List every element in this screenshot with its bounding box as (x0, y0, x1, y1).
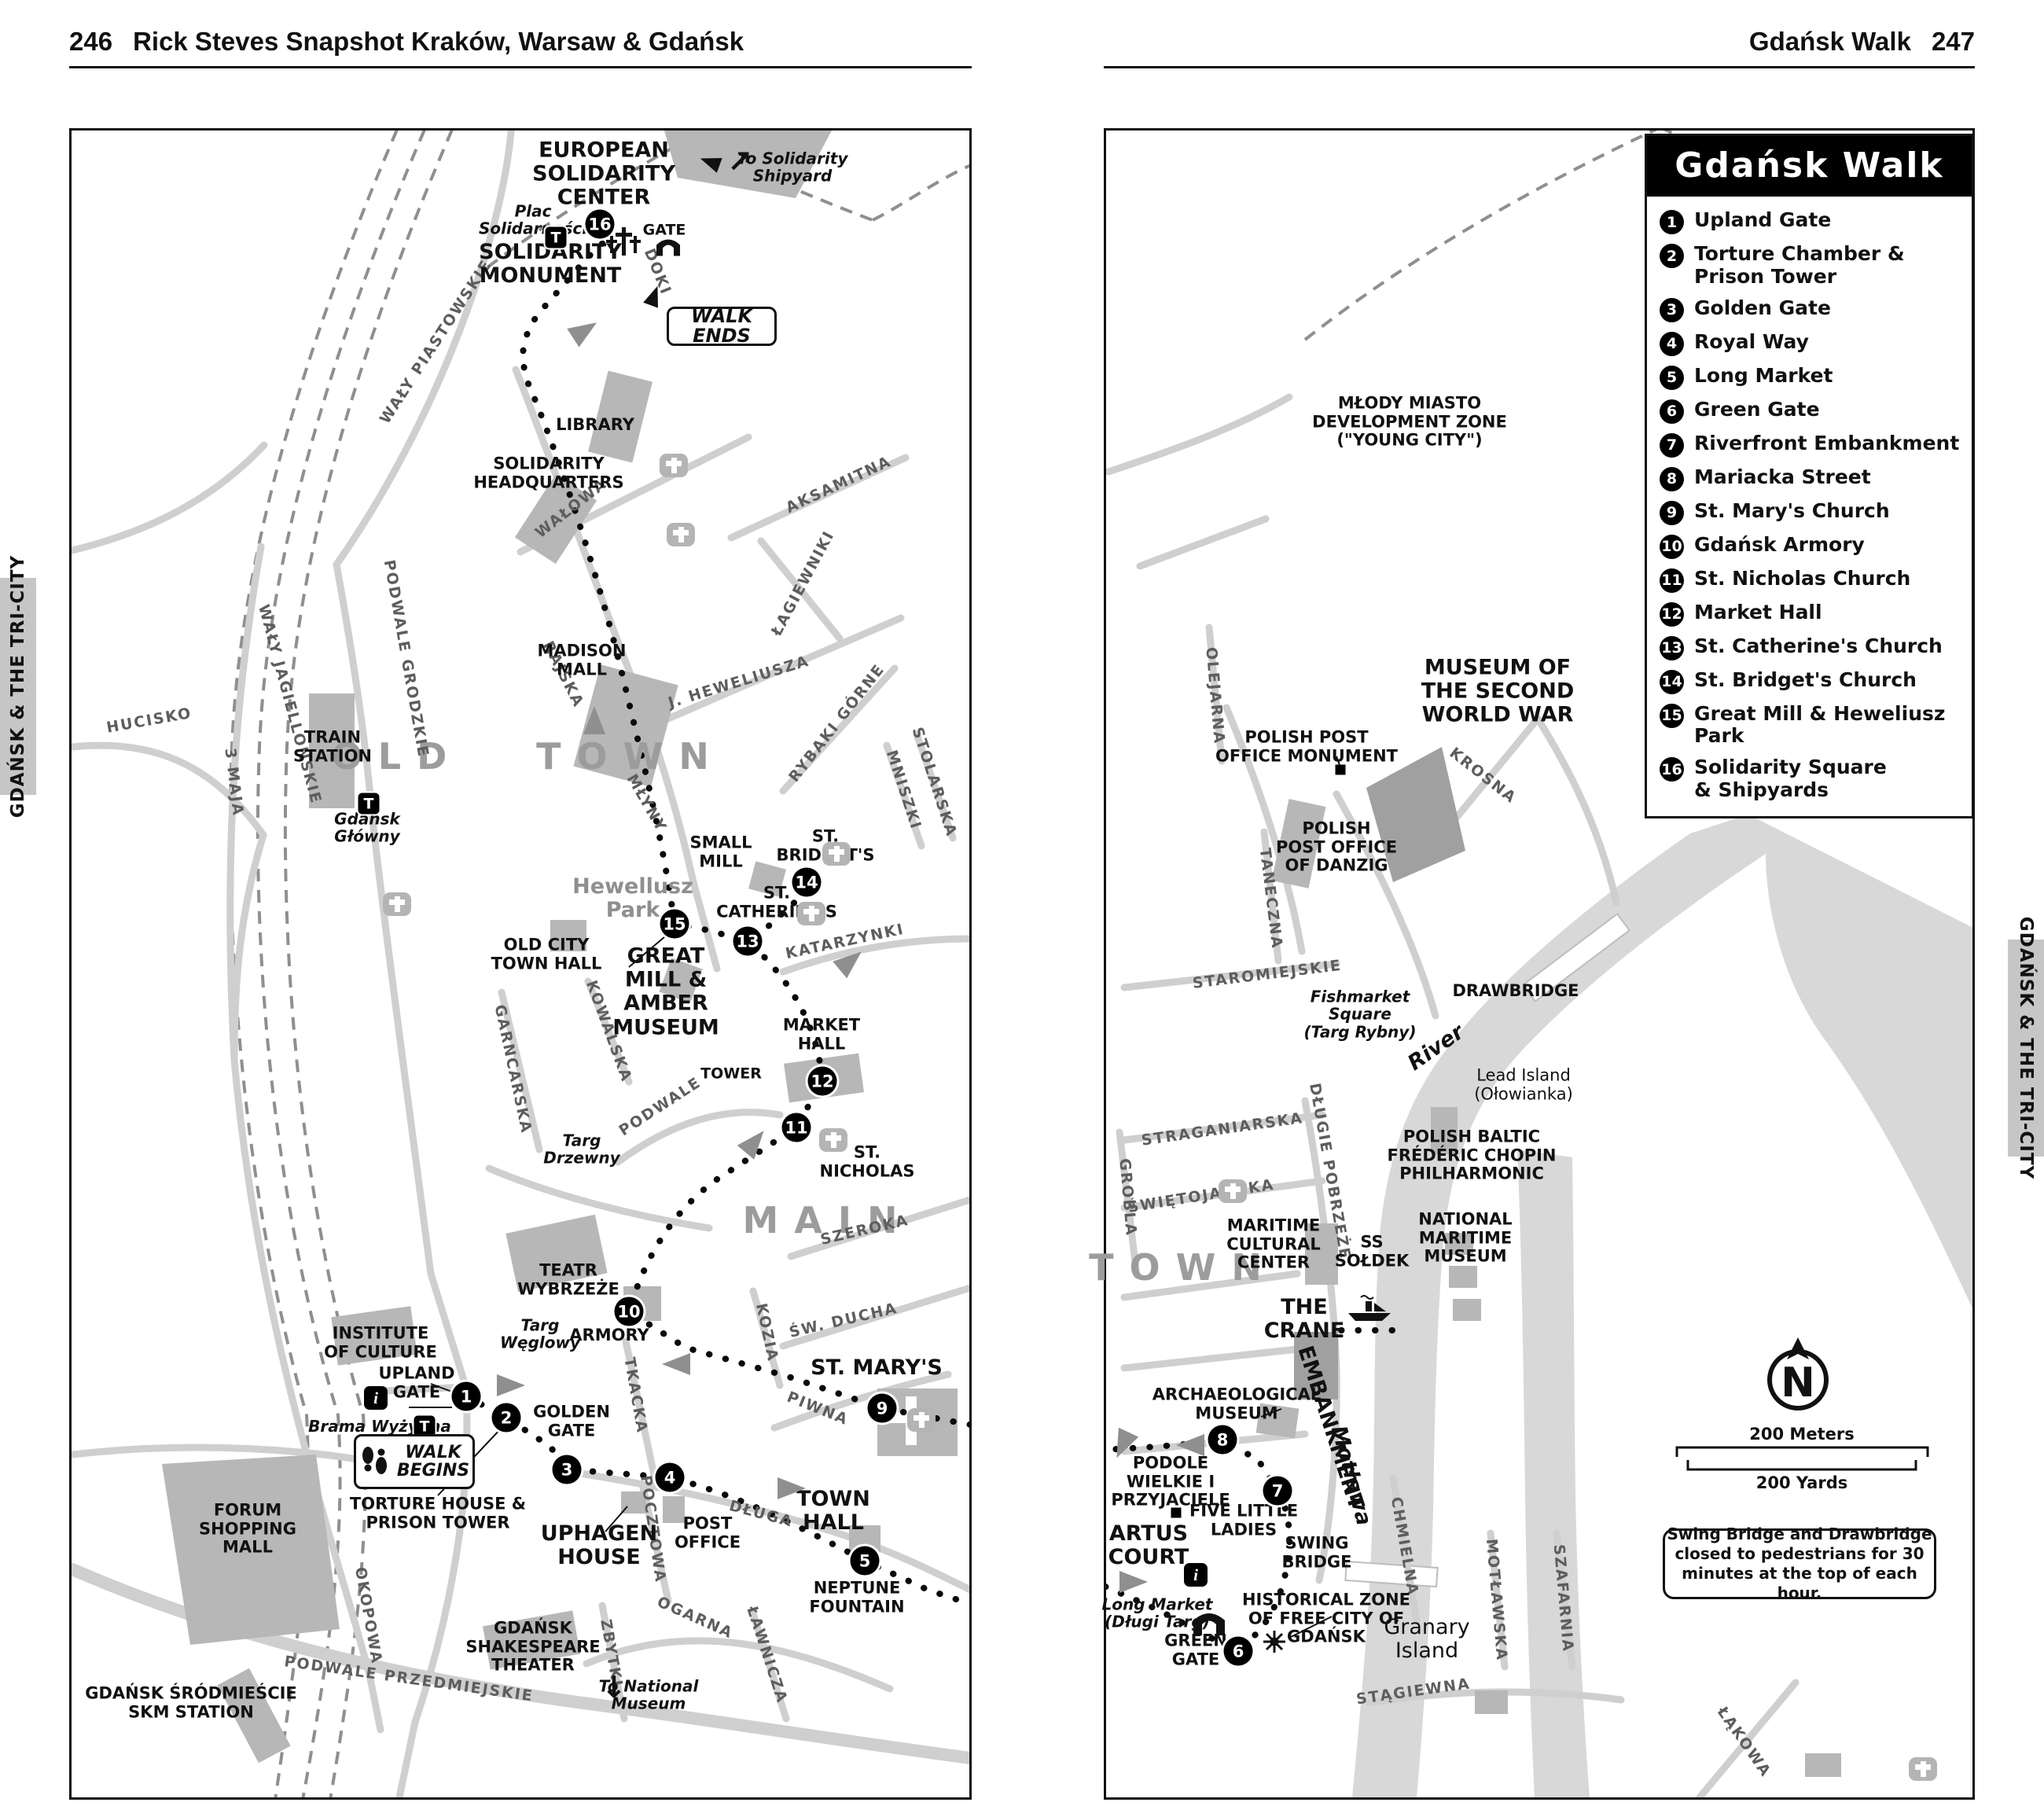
historic-zone-marker-icon (1262, 1629, 1287, 1654)
ship-icon (1345, 1294, 1394, 1322)
legend-label-riverfront-embankment: Riverfront Embankment (1694, 432, 1959, 455)
legend-item-1: 1Upland Gate (1660, 209, 1961, 234)
walk-stop-12: 12 (808, 1067, 837, 1096)
map-label-młody-miasto-development-zone-young-city: MŁODY MIASTO DEVELOPMENT ZONE ("YOUNG CI… (1312, 395, 1507, 451)
legend-list: 1Upland Gate2Torture Chamber & Prison To… (1647, 197, 1972, 816)
legend-label-mariacka-street: Mariacka Street (1694, 466, 1871, 489)
map-label-gdańsk-śródmieście-skm-station: GDAŃSK ŚRÓDMIEŚCIE SKM STATION (85, 1684, 297, 1721)
walk-begins-label: WALK BEGINS (397, 1444, 469, 1480)
legend-item-2: 2Torture Chamber & Prison Tower (1660, 243, 1961, 289)
bridge-note-text: Swing Bridge and Drawbridge closed to pe… (1665, 1525, 1934, 1603)
legend-badge-16: 16 (1660, 757, 1684, 782)
walk-stop-2: 2 (492, 1403, 521, 1433)
map-label-to-solidarity-shipyard: To Solidarity Shipyard (737, 150, 848, 186)
book-spread: 246Rick Steves Snapshot Kraków, Warsaw &… (0, 0, 2044, 1817)
walk-stop-1: 1 (452, 1382, 481, 1411)
legend-label-torture-chamber-prison-tower: Torture Chamber & Prison Tower (1694, 243, 1905, 289)
legend-label-golden-gate: Golden Gate (1694, 297, 1831, 320)
walk-ends-callout: WALK ENDS (667, 307, 777, 346)
legend-title: Gdańsk Walk (1647, 136, 1972, 197)
map-label-institute-of-culture: INSTITUTE OF CULTURE (324, 1324, 437, 1361)
walk-stop-10: 10 (615, 1297, 644, 1326)
legend-label-st-catherine-s-church: St. Catherine's Church (1694, 635, 1943, 658)
legend-badge-10: 10 (1660, 535, 1684, 559)
map-label-swing-bridge: SWING BRIDGE (1281, 1534, 1351, 1571)
map-label-market-hall: MARKET HALL (783, 1016, 860, 1053)
legend-label-green-gate: Green Gate (1694, 399, 1820, 421)
map-label-town-hall: TOWN HALL (796, 1488, 870, 1535)
church-cross-icon (822, 842, 851, 866)
green-gate-icon (1191, 1613, 1227, 1636)
map-label-polish-post-office-monument: POLISH POST OFFICE MONUMENT (1215, 728, 1398, 765)
map-label-plac-solidarności: Plac Solidarności (479, 203, 587, 238)
legend-label-gdańsk-armory: Gdańsk Armory (1694, 534, 1865, 557)
legend-item-4: 4Royal Way (1660, 331, 1961, 356)
legend-label-st-mary-s-church: St. Mary's Church (1694, 500, 1890, 523)
map-label-granary-island: Granary Island (1384, 1616, 1469, 1663)
direction-arrow-icon (662, 1353, 690, 1375)
map-label-golden-gate: GOLDEN GATE (533, 1403, 610, 1440)
legend-item-3: 3Golden Gate (1660, 297, 1961, 322)
walk-stop-8: 8 (1208, 1425, 1237, 1455)
church-cross-icon (383, 892, 411, 916)
legend-label-upland-gate: Upland Gate (1694, 209, 1831, 232)
scale-yards-label: 200 Yards (1756, 1473, 1847, 1492)
church-cross-icon (1909, 1757, 1937, 1781)
map-label-post-office: POST OFFICE (675, 1514, 741, 1551)
legend-item-16: 16Solidarity Square & Shipyards (1660, 756, 1961, 802)
walk-stop-13: 13 (733, 927, 763, 956)
legend-item-12: 12Market Hall (1660, 601, 1961, 627)
bridge-note: Swing Bridge and Drawbridge closed to pe… (1663, 1528, 1936, 1599)
map-label-lead-island-ołowianka: Lead Island (Ołowianka) (1474, 1066, 1573, 1103)
legend-item-13: 13St. Catherine's Church (1660, 635, 1961, 660)
map-label-targ-węglowy: Targ Węglowy (500, 1317, 580, 1352)
compass-letter: N (1781, 1359, 1815, 1407)
direction-arrow-icon (1119, 1571, 1148, 1593)
info-icon: i (364, 1386, 388, 1410)
legend-badge-7: 7 (1660, 433, 1684, 458)
walk-stop-7: 7 (1263, 1477, 1292, 1506)
legend-badge-3: 3 (1660, 298, 1684, 322)
legend-badge-6: 6 (1660, 399, 1684, 424)
walk-stop-11: 11 (782, 1113, 811, 1142)
legend-label-st-bridget-s-church: St. Bridget's Church (1694, 669, 1917, 692)
map-label-tower: TOWER (700, 1065, 762, 1082)
map-label-maritime-cultural-center: MARITIME CULTURAL CENTER (1226, 1217, 1321, 1273)
legend-badge-9: 9 (1660, 501, 1684, 525)
map-label-archaeological-museum: ARCHAEOLOGICAL MUSEUM (1153, 1385, 1321, 1422)
map-label-madison-mall: MADISON MALL (538, 642, 627, 679)
legend-item-5: 5Long Market (1660, 365, 1961, 390)
map-label-old-city-town-hall: OLD CITY TOWN HALL (491, 936, 602, 973)
legend-label-great-mill-heweliusz-park: Great Mill & Heweliusz Park (1694, 703, 1945, 749)
map-label-small-mill: SMALL MILL (689, 833, 752, 870)
legend-label-solidarity-square-shipyards: Solidarity Square & Shipyards (1694, 756, 1887, 802)
map-label-green-gate: GREEN GATE (1164, 1631, 1227, 1668)
map-label-upland-gate: UPLAND GATE (378, 1364, 454, 1401)
legend-label-market-hall: Market Hall (1694, 601, 1822, 624)
tram-stop-icon: T (546, 227, 567, 248)
legend-badge-14: 14 (1660, 670, 1684, 694)
map-label-great-mill-amber-museum: GREAT MILL & AMBER MUSEUM (612, 945, 719, 1040)
legend-item-9: 9St. Mary's Church (1660, 500, 1961, 525)
poi-square-icon (1336, 765, 1346, 775)
walk-stop-9: 9 (868, 1394, 897, 1423)
direction-arrow-icon (1176, 1434, 1204, 1456)
walk-stop-4: 4 (656, 1463, 685, 1492)
map-label-five-little-ladies: FIVE LITTLE LADIES (1189, 1502, 1298, 1539)
gate-icon (655, 239, 682, 257)
legend-badge-13: 13 (1660, 636, 1684, 660)
map-label-armory: ARMORY (569, 1326, 649, 1345)
map-label-library: LIBRARY (556, 416, 634, 435)
legend-badge-5: 5 (1660, 366, 1684, 390)
walk-stop-15: 15 (660, 910, 689, 939)
walk-stop-14: 14 (792, 868, 822, 897)
legend-label-royal-way: Royal Way (1694, 331, 1809, 354)
compass-north-icon: N (1760, 1333, 1836, 1416)
map-label-uphagen-house: UPHAGEN HOUSE (541, 1522, 657, 1569)
legend-badge-8: 8 (1660, 467, 1684, 491)
map-label-artus-court: ARTUS COURT (1108, 1522, 1189, 1569)
legend-item-15: 15Great Mill & Heweliusz Park (1660, 703, 1961, 749)
map-label-fishmarket-square-targ-rybny: Fishmarket Square (Targ Rybny) (1304, 988, 1417, 1040)
map-label-drawbridge: DRAWBRIDGE (1452, 982, 1579, 1001)
map-label-ss-sołdek: SS SOŁDEK (1335, 1233, 1410, 1270)
map-label-torture-house-prison-tower: TORTURE HOUSE & PRISON TOWER (350, 1495, 526, 1532)
legend-label-st-nicholas-church: St. Nicholas Church (1694, 568, 1910, 590)
map-label-gdańsk-główny: Gdańsk Główny (334, 811, 400, 846)
walk-stop-6: 6 (1224, 1637, 1253, 1666)
legend-badge-1: 1 (1660, 210, 1684, 234)
tram-stop-icon: T (358, 793, 380, 815)
legend-box: Gdańsk Walk 1Upland Gate2Torture Chamber… (1645, 134, 1974, 818)
legend-badge-2: 2 (1660, 244, 1684, 268)
walk-begins-callout: WALK BEGINS (354, 1434, 475, 1489)
church-cross-icon (907, 1408, 936, 1432)
map-label-polish-post-office-of-danzig: POLISH POST OFFICE OF DANZIG (1276, 820, 1397, 876)
map-label-targ-drzewny: Targ Drzewny (543, 1132, 619, 1168)
walk-stop-3: 3 (553, 1455, 582, 1484)
direction-arrow-icon (778, 1477, 806, 1499)
legend-item-7: 7Riverfront Embankment (1660, 432, 1961, 458)
church-cross-icon (819, 1128, 847, 1152)
info-icon: i (1184, 1563, 1208, 1587)
map-label-european-solidarity-center: EUROPEAN SOLIDARITY CENTER (532, 139, 675, 211)
map-label-teatr-wybrzeże: TEATR WYBRZEŻE (517, 1261, 619, 1298)
map-label-st-mary-s: ST. MARY'S (811, 1356, 943, 1380)
map-label-solidarity-headquarters: SOLIDARITY HEADQUARTERS (473, 454, 623, 491)
legend-item-11: 11St. Nicholas Church (1660, 568, 1961, 593)
legend-label-long-market: Long Market (1694, 365, 1833, 388)
map-label-the-crane: THE CRANE (1264, 1296, 1345, 1343)
legend-item-8: 8Mariacka Street (1660, 466, 1961, 491)
thin-arrow-icon: ↓ (601, 1670, 627, 1705)
walk-stop-5: 5 (851, 1547, 880, 1576)
scale-meters-label: 200 Meters (1749, 1425, 1854, 1444)
church-cross-icon (1219, 1179, 1247, 1203)
church-cross-icon (667, 523, 695, 546)
district-label-town: TOWN (536, 737, 725, 778)
legend-badge-12: 12 (1660, 602, 1684, 627)
map-label-polish-baltic-fr-d-ric-chopin-philharmonic: POLISH BALTIC FRÉDÉRIC CHOPIN PHILHARMON… (1388, 1128, 1557, 1184)
map-label-national-maritime-museum: NATIONAL MARITIME MUSEUM (1418, 1211, 1512, 1267)
map-label-train-station: TRAIN STATION (293, 728, 372, 765)
map-label-forum-shopping-mall: FORUM SHOPPING MALL (199, 1502, 296, 1558)
footprints-icon (359, 1444, 391, 1480)
map-label-gdańsk-shakespeare-theater: GDAŃSK SHAKESPEARE THEATER (465, 1620, 600, 1675)
legend-badge-11: 11 (1660, 568, 1684, 593)
legend-item-14: 14St. Bridget's Church (1660, 669, 1961, 694)
map-label-gate: GATE (643, 222, 686, 238)
thin-arrow-icon: ↗ (727, 145, 752, 179)
church-cross-icon (660, 454, 688, 477)
legend-badge-15: 15 (1660, 704, 1684, 728)
walk-ends-label: WALK ENDS (669, 307, 774, 346)
monument-cross-icon (605, 226, 642, 259)
map-label-neptune-fountain: NEPTUNE FOUNTAIN (809, 1579, 904, 1616)
poi-square-icon (1171, 1508, 1182, 1518)
legend-item-6: 6Green Gate (1660, 399, 1961, 424)
map-label-museum-of-the-second-world-war: MUSEUM OF THE SECOND WORLD WAR (1421, 657, 1575, 728)
legend-badge-4: 4 (1660, 332, 1684, 356)
direction-arrow-icon (497, 1374, 525, 1396)
direction-arrow-icon (583, 706, 605, 734)
legend-item-10: 10Gdańsk Armory (1660, 534, 1961, 559)
church-cross-icon (797, 902, 825, 925)
